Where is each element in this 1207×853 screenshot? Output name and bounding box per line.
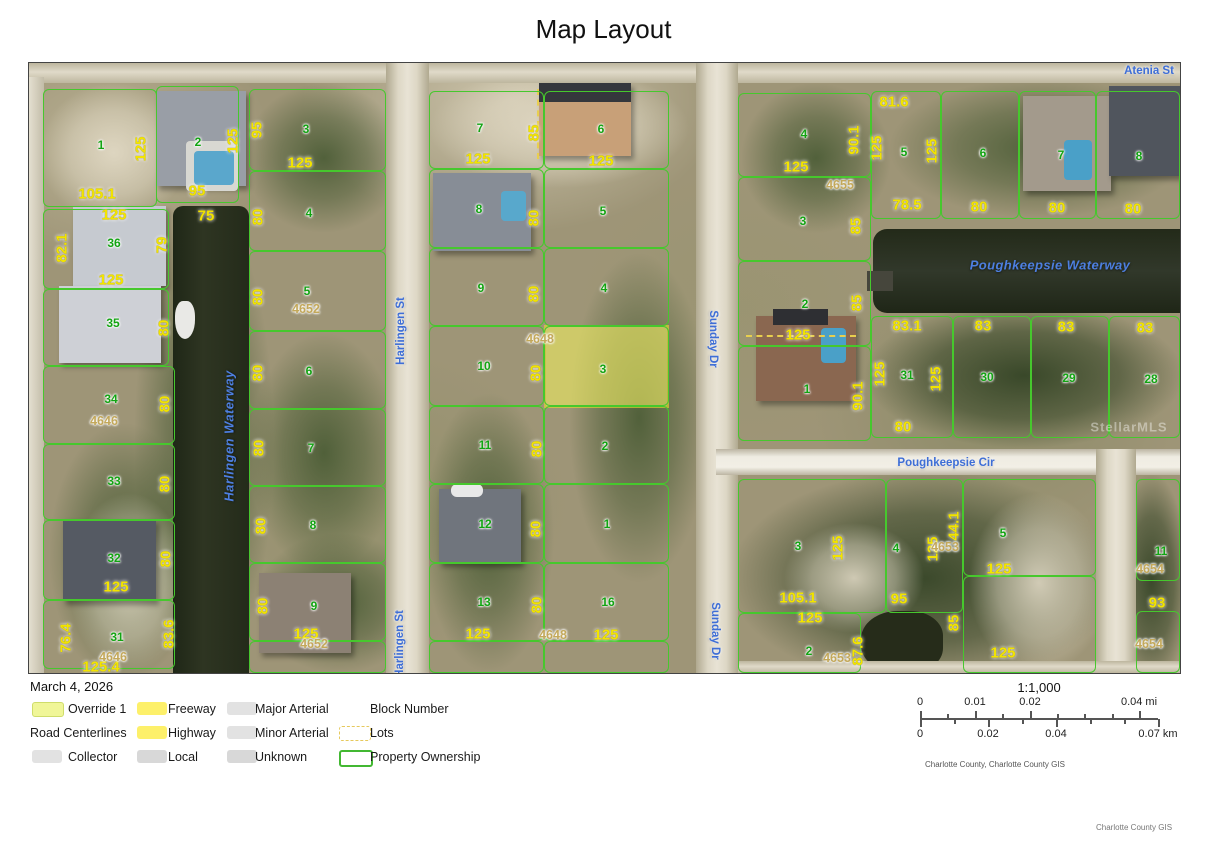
scale-tick bbox=[1084, 714, 1086, 719]
legend-swatch-property-ownership bbox=[339, 750, 373, 767]
scale-tick bbox=[1124, 719, 1126, 724]
block-number-label: 4648 bbox=[539, 628, 567, 642]
scale-ratio: 1:1,000 bbox=[920, 680, 1158, 695]
legend-label-block-number: Block Number bbox=[370, 702, 449, 716]
page-title: Map Layout bbox=[0, 14, 1207, 45]
lot-number-label: 4 bbox=[893, 541, 900, 555]
lot-number-label: 8 bbox=[476, 202, 483, 216]
dimension-label: 87.6 bbox=[850, 636, 867, 665]
block-number-label: 4653 bbox=[823, 651, 851, 665]
lot-number-label: 32 bbox=[107, 551, 120, 565]
scale-bar: 1:1,000 00.010.020.04 mi00.020.040.07 km bbox=[920, 680, 1170, 744]
map-date: March 4, 2026 bbox=[30, 679, 113, 694]
lot-number-label: 4 bbox=[601, 281, 608, 295]
lot-number-label: 31 bbox=[900, 368, 913, 382]
lot-number-label: 9 bbox=[311, 599, 318, 613]
dimension-label: 125 bbox=[465, 151, 490, 168]
dimension-label: 80 bbox=[529, 441, 546, 458]
lot-number-label: 6 bbox=[306, 364, 313, 378]
dimension-label: 125 bbox=[928, 366, 945, 391]
map-credit: Charlotte County, Charlotte County GIS bbox=[925, 760, 1065, 769]
street-name-label: Harlingen St bbox=[394, 610, 406, 674]
scale-tick bbox=[1022, 719, 1024, 724]
dimension-label: 125 bbox=[986, 561, 1011, 578]
lot-number-label: 30 bbox=[980, 370, 993, 384]
dimension-label: 125 bbox=[830, 535, 847, 560]
legend-swatch-local bbox=[137, 750, 167, 763]
scale-tick bbox=[1158, 719, 1160, 727]
dimension-label: 44.1 bbox=[946, 511, 963, 540]
lot-number-label: 8 bbox=[1136, 149, 1143, 163]
lot-number-label: 2 bbox=[806, 644, 813, 658]
legend-label-highway: Highway bbox=[168, 726, 216, 740]
scale-tick bbox=[975, 711, 977, 719]
scale-tick bbox=[920, 711, 922, 719]
dimension-label: 85 bbox=[848, 218, 865, 235]
scale-tick bbox=[1090, 719, 1092, 724]
scale-tick bbox=[920, 719, 922, 727]
lot-number-label: 29 bbox=[1062, 371, 1075, 385]
dimension-label: 95 bbox=[891, 591, 908, 608]
legend-label-minor-arterial: Minor Arterial bbox=[255, 726, 329, 740]
waterway-name-label: Poughkeepsie Waterway bbox=[970, 258, 1131, 273]
lot-number-label: 33 bbox=[107, 474, 120, 488]
legend: Override 1FreewayMajor ArterialBlock Num… bbox=[30, 702, 530, 776]
lot-number-label: 4 bbox=[306, 206, 313, 220]
street-name-label: Poughkeepsie Cir bbox=[897, 457, 994, 469]
dimension-label: 125 bbox=[785, 327, 810, 344]
lot-number-label: 31 bbox=[110, 630, 123, 644]
dimension-label: 83.1 bbox=[892, 318, 921, 335]
dimension-label: 105.1 bbox=[779, 590, 817, 607]
dimension-label: 125 bbox=[593, 627, 618, 644]
lot-number-label: 3 bbox=[800, 214, 807, 228]
map-annotations: 1236353433323134567897891011121365432116… bbox=[29, 63, 1180, 673]
lot-number-label: 10 bbox=[477, 359, 490, 373]
lot-number-label: 6 bbox=[980, 146, 987, 160]
block-number-label: 4652 bbox=[292, 302, 320, 316]
scale-tick bbox=[1056, 719, 1058, 727]
dimension-label: 90.1 bbox=[850, 381, 867, 410]
legend-swatch-major-arterial bbox=[227, 702, 257, 715]
lot-number-label: 12 bbox=[478, 517, 491, 531]
dimension-label: 93 bbox=[1149, 595, 1166, 612]
dimension-label: 80 bbox=[528, 365, 545, 382]
scale-mi-label: 0.04 mi bbox=[1121, 696, 1157, 708]
scale-mi-label: 0.02 bbox=[1019, 696, 1040, 708]
scale-bar-line bbox=[920, 718, 1158, 720]
dimension-label: 85 bbox=[526, 125, 543, 142]
lot-number-label: 28 bbox=[1144, 372, 1157, 386]
lot-number-label: 4 bbox=[801, 127, 808, 141]
scale-tick bbox=[1112, 714, 1114, 719]
lot-number-label: 2 bbox=[602, 439, 609, 453]
dimension-label: 125 bbox=[98, 272, 123, 289]
dimension-label: 125 bbox=[133, 136, 150, 161]
dimension-label: 81.6 bbox=[879, 94, 908, 111]
dimension-label: 80 bbox=[255, 598, 272, 615]
dimension-label: 83 bbox=[1058, 319, 1075, 336]
dimension-label: 80 bbox=[528, 521, 545, 538]
scale-km-label: 0.02 bbox=[977, 728, 998, 740]
dimension-label: 125 bbox=[924, 138, 941, 163]
lot-number-label: 3 bbox=[600, 362, 607, 376]
dimension-label: 125 bbox=[588, 153, 613, 170]
dimension-label: 83 bbox=[1137, 320, 1154, 337]
legend-label-local: Local bbox=[168, 750, 198, 764]
dimension-label: 80 bbox=[158, 551, 175, 568]
dimension-label: 80 bbox=[1125, 201, 1142, 218]
dimension-label: 80 bbox=[250, 289, 267, 306]
dimension-label: 80 bbox=[529, 597, 546, 614]
lot-number-label: 9 bbox=[478, 281, 485, 295]
legend-swatch-freeway bbox=[137, 702, 167, 715]
map-canvas: 1236353433323134567897891011121365432116… bbox=[28, 62, 1181, 674]
dimension-label: 80 bbox=[971, 199, 988, 216]
block-number-label: 4646 bbox=[99, 650, 127, 664]
legend-swatch-highway bbox=[137, 726, 167, 739]
street-name-label: Sunday Dr bbox=[709, 602, 721, 660]
lot-number-label: 11 bbox=[1155, 544, 1168, 558]
lot-number-label: 16 bbox=[601, 595, 614, 609]
dimension-label: 90.1 bbox=[846, 125, 863, 154]
legend-swatch-collector bbox=[32, 750, 62, 763]
scale-tick bbox=[947, 714, 949, 719]
dimension-label: 125 bbox=[797, 610, 822, 627]
dimension-label: 125 bbox=[990, 645, 1015, 662]
scale-km-label: 0.07 km bbox=[1138, 728, 1177, 740]
scale-mi-label: 0 bbox=[917, 696, 923, 708]
lot-number-label: 7 bbox=[1058, 148, 1065, 162]
dimension-label: 79 bbox=[154, 237, 171, 254]
block-number-label: 4646 bbox=[90, 414, 118, 428]
dimension-label: 125 bbox=[287, 155, 312, 172]
dimension-label: 80 bbox=[526, 286, 543, 303]
page: Map Layout bbox=[0, 0, 1207, 853]
dimension-label: 80 bbox=[157, 476, 174, 493]
dimension-label: 80 bbox=[250, 209, 267, 226]
dimension-label: 105.1 bbox=[78, 186, 116, 203]
legend-label-road-centerlines: Road Centerlines bbox=[30, 726, 127, 740]
lot-number-label: 11 bbox=[479, 438, 492, 452]
dimension-label: 80 bbox=[253, 518, 270, 535]
dimension-label: 82.1 bbox=[54, 233, 71, 262]
scale-mi-label: 0.01 bbox=[964, 696, 985, 708]
block-number-label: 4655 bbox=[826, 178, 854, 192]
lot-number-label: 6 bbox=[598, 122, 605, 136]
block-number-label: 4653 bbox=[931, 540, 959, 554]
dimension-label: 85 bbox=[946, 615, 963, 632]
block-number-label: 4654 bbox=[1136, 562, 1164, 576]
lot-number-label: 2 bbox=[802, 297, 809, 311]
legend-swatch-override-1 bbox=[32, 702, 64, 717]
lot-number-label: 3 bbox=[795, 539, 802, 553]
scale-tick bbox=[954, 719, 956, 724]
lot-number-label: 3 bbox=[303, 122, 310, 136]
legend-label-major-arterial: Major Arterial bbox=[255, 702, 329, 716]
legend-label-collector: Collector bbox=[68, 750, 117, 764]
dimension-label: 80 bbox=[156, 320, 173, 337]
dimension-label: 80 bbox=[157, 396, 174, 413]
lot-number-label: 5 bbox=[600, 204, 607, 218]
dimension-label: 125 bbox=[872, 361, 889, 386]
waterway-name-label: Harlingen Waterway bbox=[222, 370, 237, 501]
scale-km-label: 0.04 bbox=[1045, 728, 1066, 740]
legend-label-lots: Lots bbox=[370, 726, 394, 740]
lot-number-label: 1 bbox=[604, 517, 611, 531]
legend-label-property-ownership: Property Ownership bbox=[370, 750, 480, 764]
lot-number-label: 5 bbox=[1000, 526, 1007, 540]
scale-tick bbox=[1002, 714, 1004, 719]
dimension-label: 125 bbox=[225, 128, 242, 153]
street-name-label: Sunday Dr bbox=[707, 310, 719, 368]
scale-tick bbox=[1030, 711, 1032, 719]
dimension-label: 125 bbox=[465, 626, 490, 643]
lot-number-label: 13 bbox=[477, 595, 490, 609]
legend-swatch-lots bbox=[339, 726, 371, 741]
lot-number-label: 7 bbox=[477, 121, 484, 135]
scale-tick bbox=[988, 719, 990, 727]
legend-swatch-unknown bbox=[227, 750, 257, 763]
dimension-label: 125 bbox=[783, 159, 808, 176]
legend-swatch-minor-arterial bbox=[227, 726, 257, 739]
dimension-label: 125 bbox=[869, 135, 886, 160]
lot-number-label: 34 bbox=[104, 392, 117, 406]
scale-tick bbox=[1139, 711, 1141, 719]
lot-number-label: 7 bbox=[308, 441, 315, 455]
dimension-label: 95 bbox=[249, 122, 266, 139]
lot-number-label: 36 bbox=[107, 236, 120, 250]
dimension-label: 80 bbox=[526, 210, 543, 227]
dimension-label: 125 bbox=[103, 579, 128, 596]
legend-label-freeway: Freeway bbox=[168, 702, 216, 716]
dimension-label: 80 bbox=[251, 440, 268, 457]
dimension-label: 80 bbox=[1049, 200, 1066, 217]
dimension-label: 76.4 bbox=[58, 623, 75, 652]
lot-number-label: 8 bbox=[310, 518, 317, 532]
lot-number-label: 2 bbox=[195, 135, 202, 149]
lot-number-label: 1 bbox=[804, 382, 811, 396]
dimension-label: 78.5 bbox=[892, 197, 921, 214]
scale-km-label: 0 bbox=[917, 728, 923, 740]
lot-number-label: 5 bbox=[901, 145, 908, 159]
dimension-label: 83 bbox=[975, 318, 992, 335]
street-name-label: Atenia St bbox=[1124, 65, 1174, 77]
dimension-label: 80 bbox=[895, 419, 912, 436]
dimension-label: 83.6 bbox=[161, 619, 178, 648]
block-number-label: 4652 bbox=[300, 637, 328, 651]
street-name-label: Harlingen St bbox=[395, 297, 407, 365]
page-credit: Charlotte County GIS bbox=[1096, 823, 1172, 832]
lot-number-label: 5 bbox=[304, 284, 311, 298]
dimension-label: 75 bbox=[198, 208, 215, 225]
dimension-label: 125 bbox=[101, 207, 126, 224]
legend-label-unknown: Unknown bbox=[255, 750, 307, 764]
legend-label-override-1: Override 1 bbox=[68, 702, 126, 716]
watermark: StellarMLS bbox=[1090, 420, 1167, 435]
block-number-label: 4654 bbox=[1135, 637, 1163, 651]
block-number-label: 4648 bbox=[526, 332, 554, 346]
dimension-label: 95 bbox=[189, 183, 206, 200]
dimension-label: 80 bbox=[250, 365, 267, 382]
dimension-label: 85 bbox=[849, 295, 866, 312]
lot-number-label: 35 bbox=[106, 316, 119, 330]
lot-number-label: 1 bbox=[98, 138, 105, 152]
